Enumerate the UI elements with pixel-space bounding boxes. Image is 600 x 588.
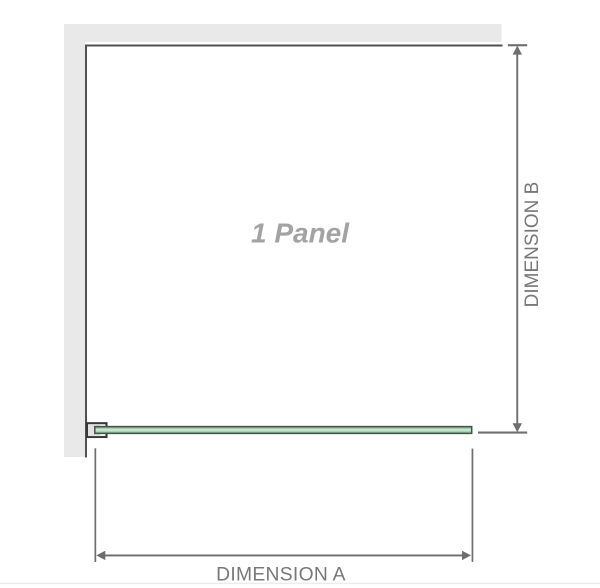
svg-text:DIMENSION B: DIMENSION B xyxy=(522,182,543,308)
svg-text:1 Panel: 1 Panel xyxy=(251,218,350,249)
svg-text:DIMENSION A: DIMENSION A xyxy=(216,565,346,586)
